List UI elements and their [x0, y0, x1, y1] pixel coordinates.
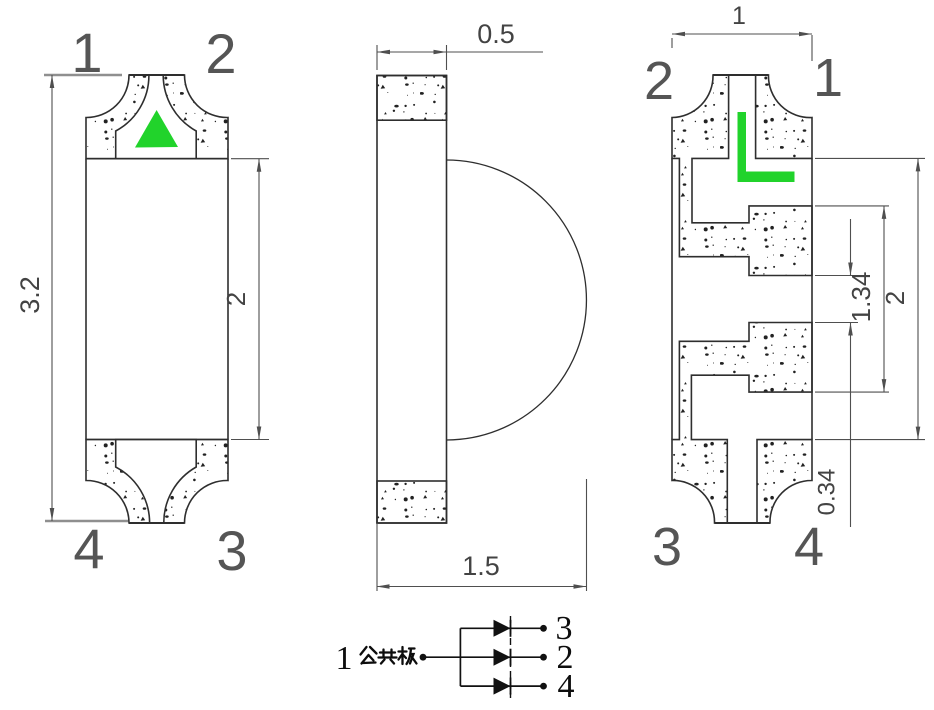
svg-text:3.2: 3.2 [15, 276, 45, 314]
svg-text:3: 3 [216, 519, 247, 582]
svg-text:0.5: 0.5 [477, 19, 515, 49]
svg-text:4: 4 [794, 517, 824, 577]
svg-text:1: 1 [732, 2, 746, 30]
svg-text:2: 2 [644, 51, 674, 111]
svg-text:4: 4 [558, 668, 575, 705]
svg-text:1: 1 [813, 48, 843, 108]
svg-text:1: 1 [336, 640, 353, 677]
svg-text:1.34: 1.34 [846, 272, 876, 323]
svg-text:2: 2 [205, 22, 236, 85]
svg-text:0.34: 0.34 [814, 469, 841, 516]
svg-text:1.5: 1.5 [462, 551, 500, 581]
svg-text:3: 3 [652, 517, 682, 577]
svg-text:1: 1 [71, 21, 102, 84]
svg-text:2: 2 [221, 292, 251, 306]
svg-text:4: 4 [73, 517, 104, 580]
